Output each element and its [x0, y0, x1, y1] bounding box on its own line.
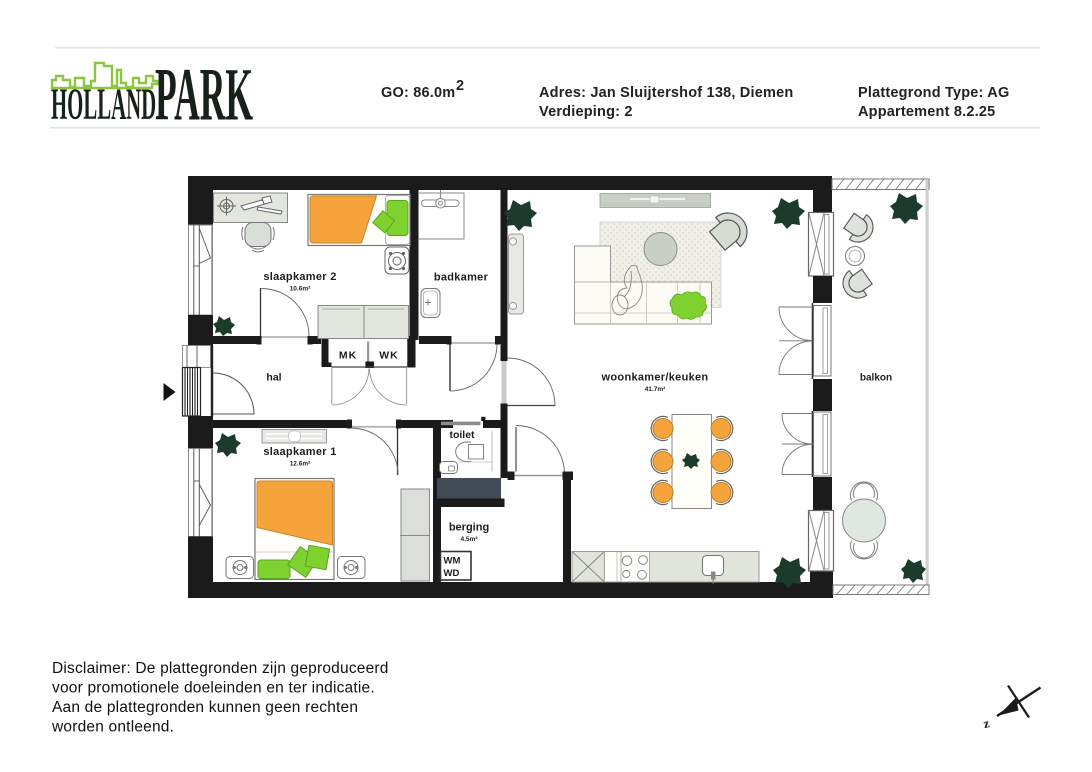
svg-text:WK: WK: [379, 350, 399, 362]
svg-text:Verdieping: 2: Verdieping: 2: [539, 104, 633, 120]
svg-text:hal: hal: [266, 372, 281, 384]
svg-text:MK: MK: [339, 350, 357, 362]
svg-text:slaapkamer 1: slaapkamer 1: [263, 446, 336, 458]
svg-text:woonkamer/keuken: woonkamer/keuken: [601, 372, 709, 384]
svg-text:balkon: balkon: [860, 373, 892, 384]
svg-text:4.5m²: 4.5m²: [461, 536, 479, 543]
svg-text:slaapkamer 2: slaapkamer 2: [263, 271, 336, 283]
svg-text:badkamer: badkamer: [434, 272, 489, 284]
svg-text:Disclaimer: De plattegronden z: Disclaimer: De plattegronden zijn geprod…: [52, 660, 389, 677]
svg-text:WM: WM: [444, 556, 461, 567]
svg-text:voor promotionele doeleinden e: voor promotionele doeleinden en ter indi…: [52, 680, 375, 697]
svg-text:12.6m²: 12.6m²: [290, 461, 311, 468]
svg-text:Appartement 8.2.25: Appartement 8.2.25: [858, 104, 995, 120]
svg-text:41.7m²: 41.7m²: [645, 386, 666, 393]
svg-text:HOLLAND: HOLLAND: [51, 80, 156, 129]
svg-text:berging: berging: [449, 522, 489, 534]
svg-text:Aan de plattegronden kunnen ge: Aan de plattegronden kunnen geen rechten: [52, 699, 358, 716]
svg-text:WD: WD: [444, 568, 460, 579]
svg-text:z: z: [982, 715, 991, 731]
svg-text:PARK: PARK: [155, 53, 253, 136]
svg-text:GO: 86.0m: GO: 86.0m: [381, 85, 455, 101]
svg-text:worden ontleend.: worden ontleend.: [51, 719, 174, 736]
svg-text:toilet: toilet: [449, 429, 475, 441]
svg-text:10.6m²: 10.6m²: [290, 286, 311, 293]
svg-text:2: 2: [456, 78, 464, 94]
svg-text:Adres: Jan Sluijtershof 138, D: Adres: Jan Sluijtershof 138, Diemen: [539, 85, 793, 101]
svg-text:Plattegrond Type: AG: Plattegrond Type: AG: [858, 85, 1009, 101]
